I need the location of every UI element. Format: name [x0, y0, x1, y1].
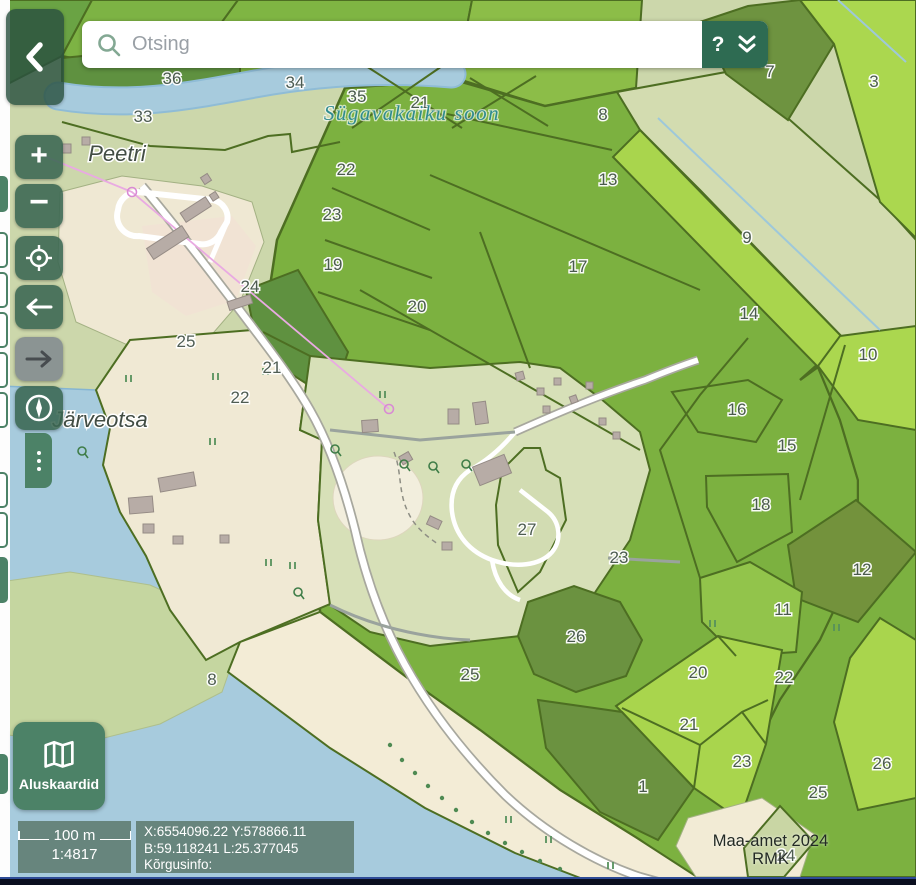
parcel-number: 19: [324, 255, 343, 274]
strip-item[interactable]: [0, 232, 8, 268]
parcel-number: 21: [263, 358, 282, 377]
coords-bl: B:59.118241 L:25.377045: [144, 841, 354, 858]
basemap-button[interactable]: Aluskaardid: [13, 722, 105, 810]
scale-tick: [130, 831, 132, 840]
place-label: Peetri: [88, 141, 147, 166]
coords-xy: X:6554096.22 Y:578866.11: [144, 824, 354, 841]
strip-item[interactable]: [0, 754, 8, 794]
bottom-window-edge: [0, 877, 916, 885]
strip-item[interactable]: [0, 176, 8, 212]
search-actions: ?: [702, 21, 768, 68]
parcel-number: 23: [323, 205, 342, 224]
compass-icon: [24, 393, 54, 423]
attribution-line1: Maa-amet 2024: [688, 832, 853, 850]
arrow-right-icon: [25, 349, 53, 369]
strip-item[interactable]: [0, 312, 8, 348]
parcel-number: 11: [774, 600, 792, 619]
strip-item[interactable]: [0, 272, 8, 308]
search-icon: [96, 32, 122, 58]
strip-item[interactable]: [0, 392, 8, 428]
place-label: Sügavakaiku soon: [324, 101, 500, 125]
parcel-number: 20: [689, 663, 708, 682]
attribution: Maa-amet 2024 RMK: [688, 832, 853, 868]
vertical-dots-icon: [37, 459, 41, 463]
search-input[interactable]: [130, 32, 702, 57]
parcel-number: 34: [286, 73, 305, 92]
parcel-number: 23: [733, 752, 752, 771]
map-icon: [42, 740, 76, 770]
parcel-number: 10: [859, 345, 878, 364]
map-canvas[interactable]: 3634353321873221323919172420142510212216…: [0, 0, 916, 885]
parcel-number: 36: [163, 69, 182, 88]
parcel-number: 15: [778, 436, 797, 455]
help-button[interactable]: ?: [712, 33, 725, 57]
strip-item[interactable]: [0, 512, 8, 548]
place-label: Järveotsa: [51, 407, 147, 432]
vertical-dots-icon: [37, 467, 41, 471]
zoom-out-button[interactable]: −: [15, 184, 63, 228]
parcel-number: 7: [765, 62, 774, 81]
parcel-number: 3: [869, 72, 878, 91]
double-chevron-down-icon: [736, 34, 758, 56]
parcel-number: 25: [177, 332, 196, 351]
strip-item[interactable]: [0, 557, 8, 603]
parcel-number: 13: [599, 170, 618, 189]
parcel-number: 18: [752, 495, 771, 514]
parcel-number: 33: [134, 107, 153, 126]
parcel-number: 21: [680, 715, 699, 734]
strip-item[interactable]: [0, 472, 8, 508]
collapsed-panel-strip[interactable]: [0, 0, 10, 877]
parcel-number: 27: [518, 520, 537, 539]
arrow-left-icon: [25, 297, 53, 317]
compass-button[interactable]: [15, 386, 63, 430]
parcel-number: 25: [809, 783, 828, 802]
parcel-number: 9: [742, 228, 751, 247]
basemap-button-label: Aluskaardid: [19, 776, 99, 792]
parcel-number: 22: [775, 668, 794, 687]
minus-icon: −: [29, 185, 49, 219]
scale-distance: 100 m: [49, 827, 101, 844]
scale-line: [100, 839, 129, 841]
parcel-number: 22: [231, 388, 250, 407]
scale-ratio: 1:4817: [18, 846, 131, 863]
search-bar: ?: [82, 21, 768, 68]
locate-me-button[interactable]: [15, 236, 63, 280]
history-forward-button[interactable]: [15, 337, 63, 381]
crosshair-target-icon: [25, 244, 53, 272]
zoom-in-button[interactable]: +: [15, 135, 63, 179]
parcel-number: 12: [853, 560, 872, 579]
chevron-left-icon: [24, 42, 46, 72]
plus-icon: +: [30, 141, 48, 171]
vertical-dots-icon: [37, 451, 41, 455]
expand-search-button[interactable]: [736, 34, 758, 56]
attribution-line2: RMK: [688, 850, 853, 868]
map-application: 3634353321873221323919172420142510212216…: [0, 0, 916, 885]
parcel-number: 25: [461, 665, 480, 684]
parcel-number: 22: [337, 160, 356, 179]
parcel-number: 24: [241, 277, 260, 296]
parcel-number: 26: [567, 627, 586, 646]
elevation-info: Kõrgusinfo:: [144, 857, 354, 874]
scale-line: [20, 839, 49, 841]
collapse-sidebar-button[interactable]: [6, 9, 64, 105]
parcel-number: 17: [569, 257, 588, 276]
parcel-number: 20: [408, 297, 427, 316]
drawer-handle[interactable]: [25, 433, 52, 488]
parcel-number: 8: [207, 670, 216, 689]
parcel-number: 8: [598, 105, 607, 124]
strip-item[interactable]: [0, 352, 8, 388]
parcel-number: 14: [740, 304, 759, 323]
parcel-number: 26: [873, 754, 892, 773]
parcel-number: 1: [638, 777, 647, 796]
parcel-number: 16: [728, 400, 747, 419]
scale-widget: 100 m 1:4817: [18, 821, 131, 873]
history-back-button[interactable]: [15, 285, 63, 329]
coordinates-widget: X:6554096.22 Y:578866.11 B:59.118241 L:2…: [136, 821, 354, 873]
parcel-number: 23: [610, 548, 629, 567]
